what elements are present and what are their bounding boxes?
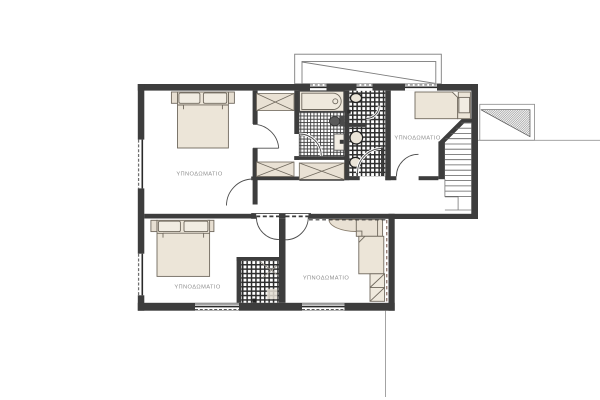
svg-text:ΥΠΝΟΔΩΜΑΤΙΟ: ΥΠΝΟΔΩΜΑΤΙΟ [394,136,441,142]
svg-text:ΥΠΝΟΔΩΜΑΤΙΟ: ΥΠΝΟΔΩΜΑΤΙΟ [174,285,221,291]
svg-text:ΥΠΝΟΔΩΜΑΤΙΟ: ΥΠΝΟΔΩΜΑΤΙΟ [176,172,223,178]
svg-text:ΥΠΝΟΔΩΜΑΤΙΟ: ΥΠΝΟΔΩΜΑΤΙΟ [303,276,350,282]
